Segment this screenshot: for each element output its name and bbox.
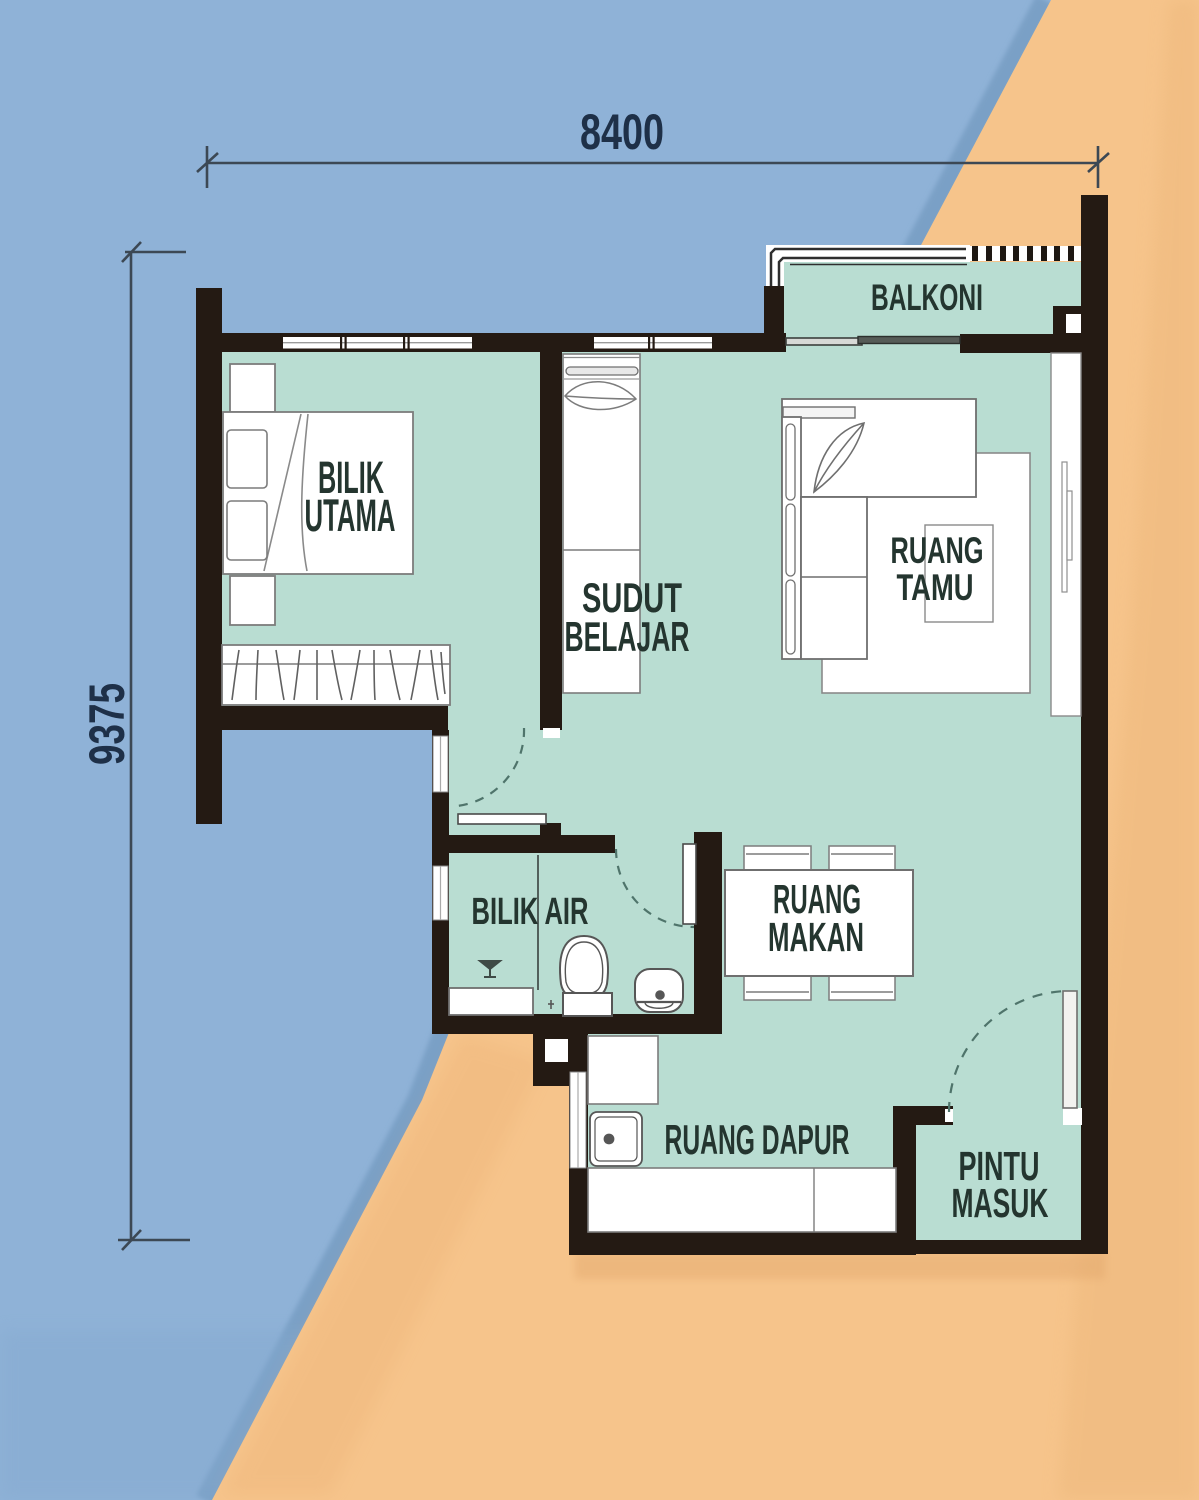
svg-text:BILIK AIR: BILIK AIR [472,891,589,933]
svg-text:9375: 9375 [79,683,135,765]
svg-text:MASUK: MASUK [952,1180,1049,1226]
svg-text:RUANG DAPUR: RUANG DAPUR [665,1116,850,1163]
svg-text:8400: 8400 [580,104,664,160]
svg-text:BALKONI: BALKONI [871,277,983,318]
svg-text:TAMU: TAMU [897,567,974,608]
svg-text:RUANG: RUANG [891,530,984,571]
svg-text:MAKAN: MAKAN [768,914,864,960]
svg-text:BELAJAR: BELAJAR [565,613,690,660]
svg-text:UTAMA: UTAMA [305,490,396,541]
